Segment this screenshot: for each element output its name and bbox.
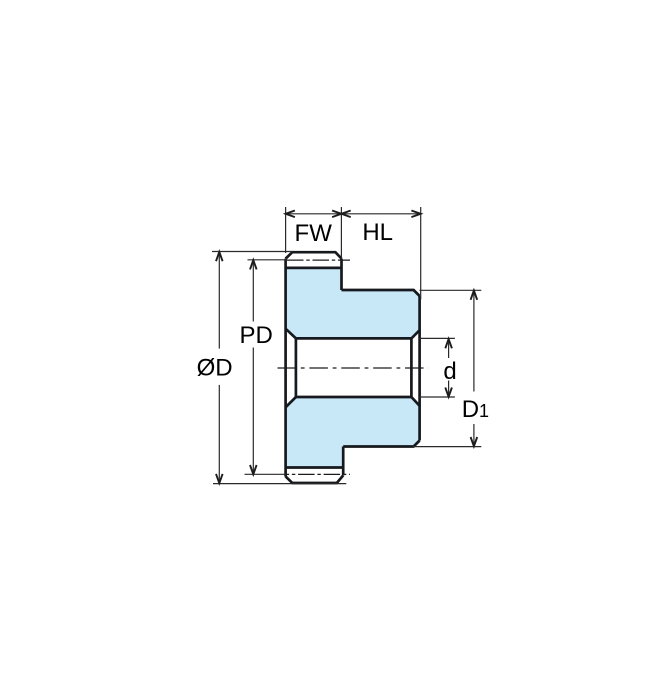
svg-text:FW: FW (295, 220, 333, 247)
svg-text:ØD: ØD (197, 355, 233, 382)
svg-text:HL: HL (362, 219, 393, 246)
svg-text:d: d (443, 358, 456, 385)
svg-text:PD: PD (240, 322, 273, 349)
svg-text:D1: D1 (462, 396, 489, 423)
